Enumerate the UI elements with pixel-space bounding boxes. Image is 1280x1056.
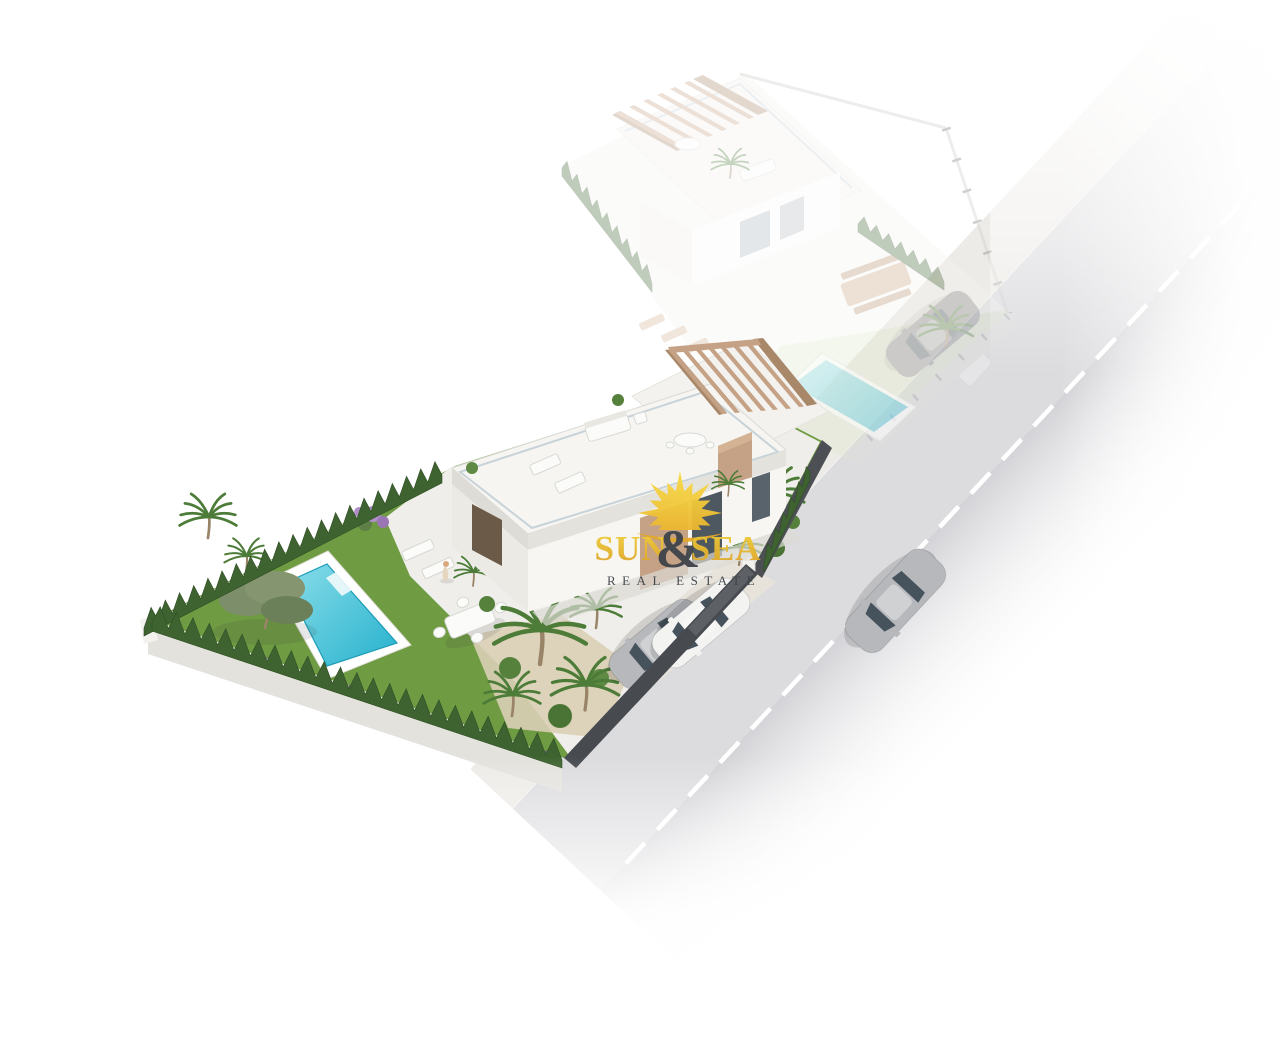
- property-render: SUN & SEA REAL ESTATE: [40, 16, 1280, 1040]
- top-right-fade: [990, 16, 1280, 376]
- neighbor-roof-table: [675, 138, 701, 150]
- brand-word-sea: SEA: [690, 529, 761, 568]
- neighbor-lounger: [638, 313, 665, 331]
- property-render-svg: SUN & SEA REAL ESTATE: [40, 16, 1280, 1040]
- brand-tagline: REAL ESTATE: [607, 573, 761, 588]
- roof-plant: [466, 462, 478, 474]
- facade-window: [752, 472, 770, 522]
- roof-plant: [612, 394, 624, 406]
